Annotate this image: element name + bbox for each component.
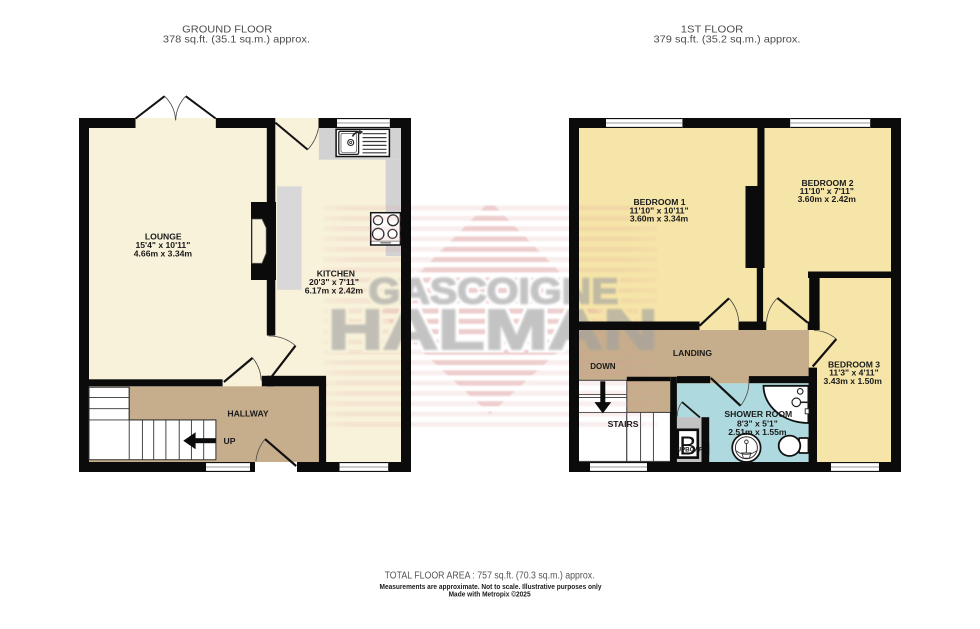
svg-text:3.43m x 1.50m: 3.43m x 1.50m bbox=[824, 376, 883, 386]
svg-text:378 sq.ft. (35.1 sq.m.) approx: 378 sq.ft. (35.1 sq.m.) approx. bbox=[163, 35, 310, 46]
svg-text:3.60m x 3.34m: 3.60m x 3.34m bbox=[630, 214, 689, 224]
svg-text:2.51m x 1.55m: 2.51m x 1.55m bbox=[728, 427, 787, 437]
svg-text:LANDING: LANDING bbox=[673, 348, 712, 358]
svg-text:HALLWAY: HALLWAY bbox=[227, 409, 268, 419]
svg-text:UP: UP bbox=[224, 436, 236, 446]
svg-text:379 sq.ft. (35.2 sq.m.) approx: 379 sq.ft. (35.2 sq.m.) approx. bbox=[654, 35, 801, 46]
svg-text:Made with Metropix ©2025: Made with Metropix ©2025 bbox=[449, 590, 531, 599]
svg-text:DOWN: DOWN bbox=[590, 362, 616, 371]
svg-text:4.66m x 3.34m: 4.66m x 3.34m bbox=[134, 248, 193, 258]
svg-text:6.17m x 2.42m: 6.17m x 2.42m bbox=[305, 285, 364, 295]
svg-text:3.60m x 2.42m: 3.60m x 2.42m bbox=[798, 194, 857, 204]
svg-text:STAIRS: STAIRS bbox=[608, 419, 639, 429]
svg-text:TOTAL FLOOR AREA : 757 sq.ft.: TOTAL FLOOR AREA : 757 sq.ft. (70.3 sq.m… bbox=[385, 571, 595, 582]
